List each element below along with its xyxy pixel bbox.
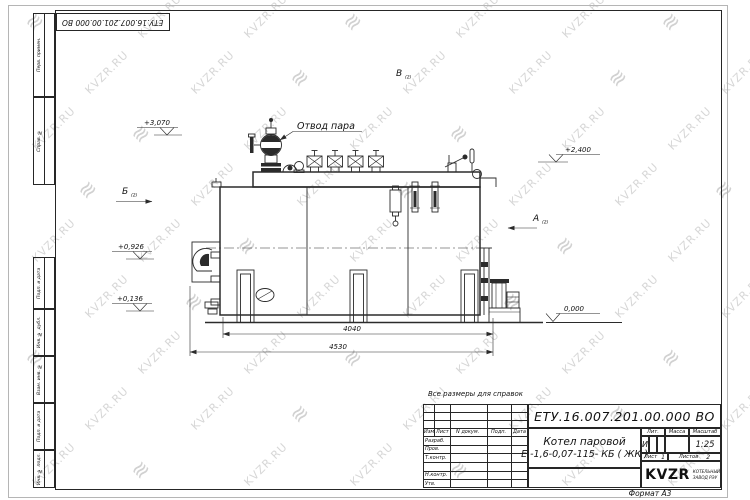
- tb-company-cell: KVZR КОТЕЛЬНЫЙ ЗАВОД РЭУ: [641, 461, 721, 488]
- tb-lit-cell3: [657, 436, 665, 453]
- margin-stamp-label: Взам. инв. №: [34, 357, 45, 402]
- svg-text:(2): (2): [405, 75, 412, 81]
- mirrored-designation-text: ЕТУ.16.007.201.00.000 ВО: [62, 18, 163, 27]
- view-arrow-a: А (2): [508, 214, 549, 228]
- elevation-2400: +2,400: [538, 146, 600, 162]
- svg-text:0,000: 0,000: [564, 305, 585, 313]
- sheets-value: 2: [706, 454, 710, 461]
- elevation-0926: +0,926: [112, 243, 154, 259]
- tb-col-list: Лист: [436, 430, 449, 435]
- margin-stamp-label: Перв. примен.: [34, 14, 45, 96]
- margin-stamp-inv-podl: Инв. № подл.: [33, 450, 55, 488]
- tb-row-nkontr: Н.контр.: [425, 473, 447, 478]
- dimension-4530: 4530: [190, 286, 493, 356]
- tb-lit-value: И: [641, 436, 649, 453]
- tb-row-utv: Утв.: [425, 482, 436, 487]
- svg-text:+0,926: +0,926: [118, 243, 144, 251]
- margin-stamp-podp-data-2: Подп. и дата: [33, 403, 55, 450]
- burner-assembly: [192, 242, 220, 314]
- safety-valves: [307, 151, 384, 173]
- elevation-3070: +3,070: [137, 119, 182, 135]
- tb-empty-cell: [528, 468, 641, 488]
- lever-valve-and-fittings: [445, 149, 496, 187]
- water-level-gauges: [390, 182, 440, 226]
- view-arrow-b: Б (2): [116, 187, 152, 202]
- tb-designation: ЕТУ.16.007.201.00.000 ВО: [528, 404, 721, 428]
- tb-col-izm: Изм: [424, 430, 434, 435]
- tb-scale-value: 1:25: [689, 436, 721, 453]
- svg-text:+2,400: +2,400: [565, 146, 591, 154]
- svg-text:В: В: [396, 69, 402, 79]
- tb-col-dokum: N докум.: [456, 430, 479, 435]
- margin-stamp-label: Инв. № подл.: [34, 451, 45, 487]
- rear-channel-and-pump: [480, 248, 520, 323]
- tb-lit-header: Лит.: [641, 428, 665, 436]
- margin-stamp-label: Справ. №: [34, 98, 45, 184]
- svg-text:Отвод пара: Отвод пара: [297, 121, 355, 132]
- margin-stamp-sprav-no: Справ. №: [33, 97, 55, 185]
- margin-stamp-vzam-inv: Взам. инв. №: [33, 356, 55, 403]
- tb-row-tkontr: Т.контр.: [425, 456, 447, 461]
- svg-text:(2): (2): [131, 193, 138, 199]
- tb-col-data: Дата: [513, 430, 526, 435]
- margin-stamp-label: Подп. и дата: [34, 258, 45, 308]
- svg-text:(2): (2): [542, 220, 549, 226]
- company-logo-text: KVZR: [645, 467, 690, 483]
- sheets-label: Листов: [679, 454, 698, 460]
- product-name-line1: Котел паровой: [543, 436, 625, 449]
- elevation-0000: 0,000: [546, 305, 600, 322]
- company-subtext: КОТЕЛЬНЫЙ ЗАВОД РЭУ: [693, 469, 720, 480]
- format-label: Формат А3: [585, 489, 715, 498]
- margin-stamp-perv-primen: Перв. примен.: [33, 13, 55, 97]
- drawing-sheet: ≋KVZR.RUKVZR.RU≋KVZR.RUKVZR.RU≋KVZR.RUKV…: [0, 0, 750, 500]
- svg-text:А: А: [532, 214, 539, 224]
- view-label-v: В (2): [396, 69, 412, 81]
- tb-sheets-cell: Листов 2: [668, 453, 721, 461]
- tb-lit-cell2: [649, 436, 657, 453]
- steam-outlet-label: Отвод пара: [280, 121, 362, 140]
- title-block: Изм Лист N докум. Подп. Дата Разраб. Про…: [423, 404, 721, 488]
- mirrored-designation-stamp: ЕТУ.16.007.201.00.000 ВО: [56, 13, 170, 31]
- tb-col-podp: Подп.: [491, 430, 506, 435]
- dim-4040-text: 4040: [343, 325, 361, 333]
- product-name-line2: Е -1,6-0,07-115- КБ ( ЖК ): [521, 449, 648, 461]
- margin-stamp-label: Подп. и дата: [34, 404, 45, 449]
- svg-text:+3,070: +3,070: [144, 119, 170, 127]
- dim-4530-text: 4530: [329, 343, 347, 351]
- tb-row-razrab: Разраб.: [425, 439, 445, 444]
- margin-stamp-inv-dubl: Инв. № дубл.: [33, 309, 55, 356]
- svg-text:Б: Б: [122, 187, 128, 197]
- elevation-0136: +0,136: [112, 295, 154, 311]
- tb-product-name: Котел паровой Е -1,6-0,07-115- КБ ( ЖК ): [528, 428, 641, 468]
- tb-row-prov: Пров.: [425, 447, 440, 452]
- tb-mass-header: Масса: [665, 428, 689, 436]
- tb-sheet-cell: Лист 1: [641, 453, 668, 461]
- tb-mass-value: [665, 436, 689, 453]
- sheet-value: 1: [661, 454, 665, 461]
- tb-scale-header: Масштаб: [689, 428, 721, 436]
- reference-note: Все размеры для справок: [428, 390, 523, 398]
- margin-stamp-podp-data-1: Подп. и дата: [33, 257, 55, 309]
- steam-outlet-valve: [249, 118, 305, 173]
- margin-stamp-label: Инв. № дубл.: [34, 310, 45, 355]
- svg-text:+0,136: +0,136: [117, 295, 143, 303]
- sheet-label: Лист: [644, 454, 657, 460]
